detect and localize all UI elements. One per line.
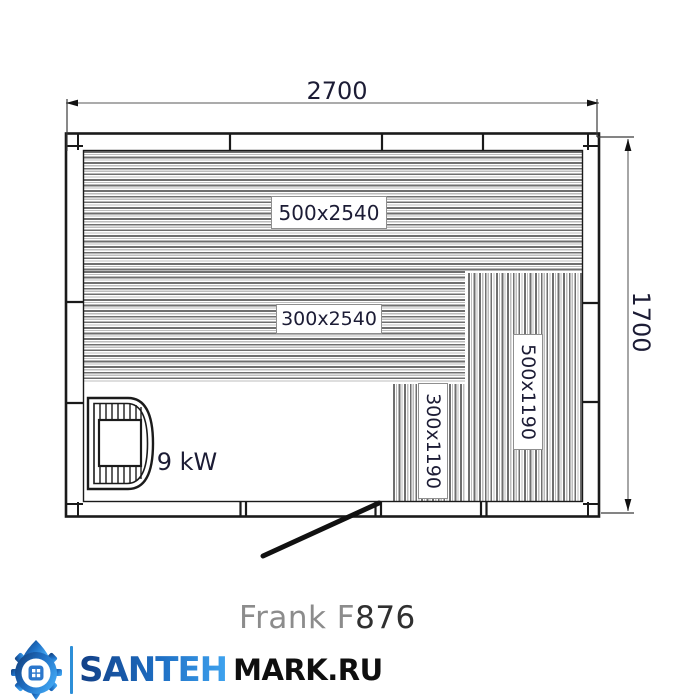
logo-text-santeh: SANTEH xyxy=(79,653,227,687)
model-title-prefix: Frank F xyxy=(239,600,355,636)
logo-text-mark-ru: MARK.RU xyxy=(233,656,383,685)
sauna-floor-plan-page: 2700 1700 500x2540 300x2540 500x1190 300… xyxy=(0,0,700,700)
logo-separator xyxy=(70,646,73,694)
model-title-suffix: 876 xyxy=(355,600,416,636)
bench-label-500x1190: 500x1190 xyxy=(513,334,543,450)
heater-power-label: 9 kW xyxy=(155,449,219,475)
dimension-width-label: 2700 xyxy=(297,78,377,104)
bench-middle-hatch xyxy=(84,271,465,383)
door-swing-line xyxy=(263,503,379,556)
heater-icon xyxy=(88,398,153,489)
bench-label-500x2540: 500x2540 xyxy=(271,196,387,229)
bench-label-300x1190: 300x1190 xyxy=(418,383,448,499)
dimension-height-label: 1700 xyxy=(628,292,654,352)
site-logo: SANTEH MARK.RU xyxy=(8,640,383,700)
model-title: Frank F876 xyxy=(239,600,416,636)
gear-house-logo-icon xyxy=(8,640,64,700)
bench-label-300x2540: 300x2540 xyxy=(276,304,382,334)
